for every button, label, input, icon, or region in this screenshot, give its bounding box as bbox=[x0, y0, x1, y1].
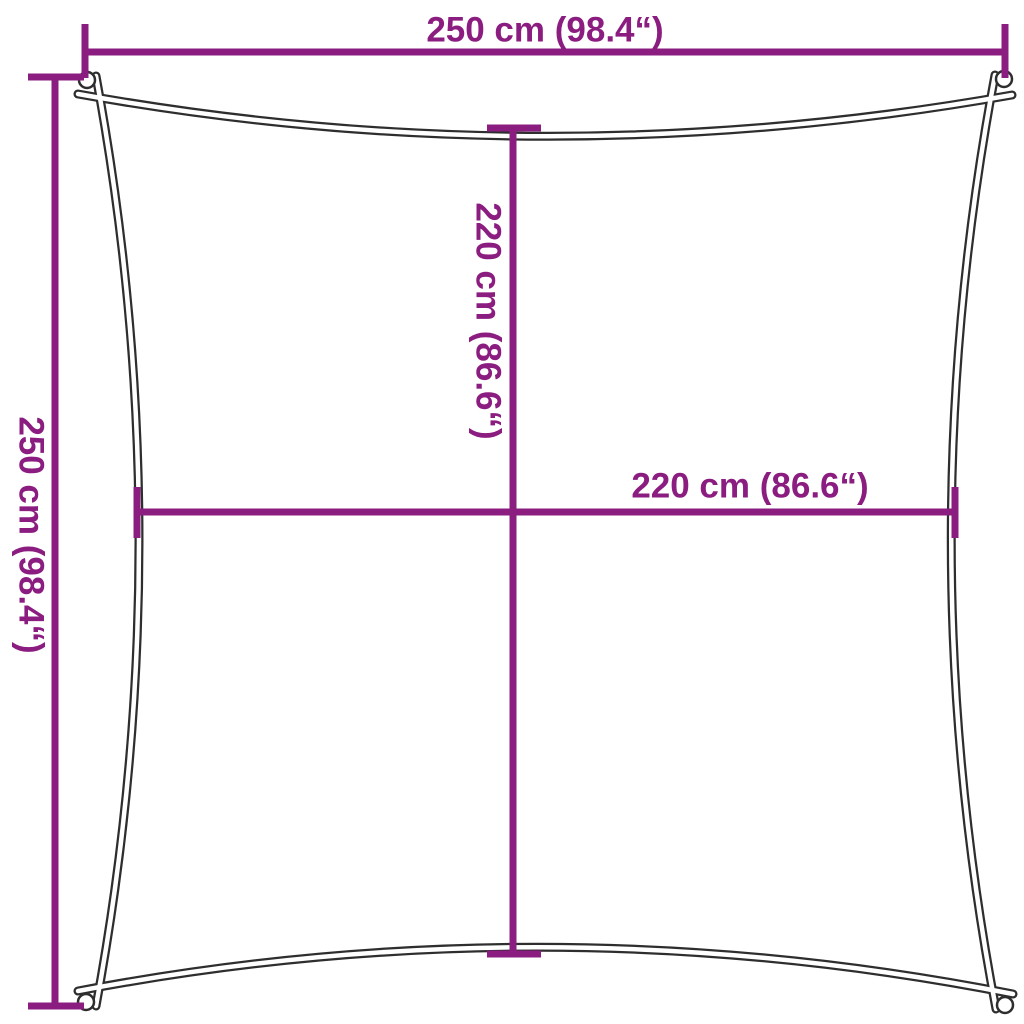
label-inner-width: 220 cm (86.6“) bbox=[631, 469, 868, 504]
sail-edge-bottom-inner bbox=[78, 947, 1013, 994]
corner-ring-bottom-right bbox=[997, 997, 1013, 1013]
sail-corner-rings bbox=[78, 71, 1013, 1013]
shade-sail-outline-inner bbox=[78, 75, 1013, 1009]
sail-dimension-diagram: 250 cm (98.4“) 250 cm (98.4“) 220 cm (86… bbox=[0, 0, 1024, 1024]
label-overall-width: 250 cm (98.4“) bbox=[426, 13, 663, 48]
dimension-lines bbox=[28, 24, 1005, 1006]
sail-edge-top-inner bbox=[78, 94, 1012, 136]
shade-sail-outline bbox=[78, 75, 1013, 1009]
diagram-canvas bbox=[0, 0, 1024, 1024]
sail-edge-left-inner bbox=[96, 76, 139, 1006]
label-overall-height: 250 cm (98.4“) bbox=[14, 416, 49, 653]
label-inner-height: 220 cm (86.6“) bbox=[471, 202, 506, 439]
sail-edge-right-inner bbox=[951, 75, 996, 1009]
